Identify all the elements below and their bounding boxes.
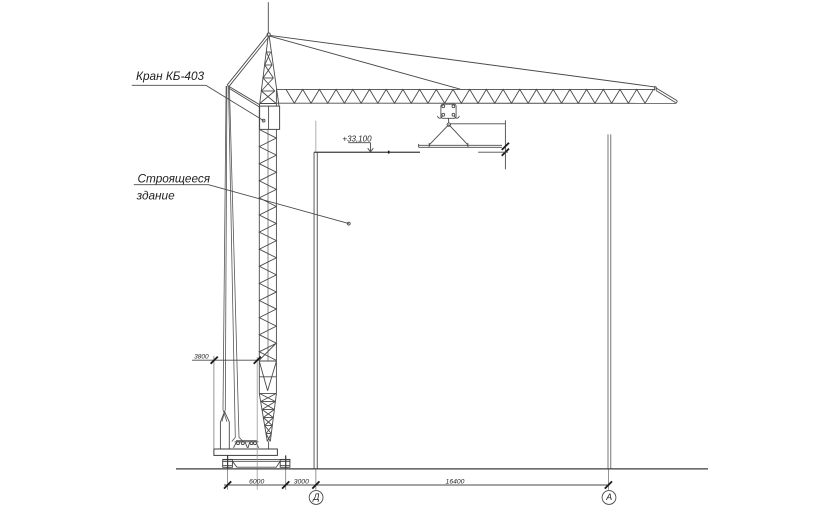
svg-text:6000: 6000 — [249, 479, 264, 486]
svg-text:Кран КБ-403: Кран КБ-403 — [136, 69, 205, 83]
svg-text:3800: 3800 — [194, 353, 209, 360]
svg-text:здание: здание — [136, 188, 175, 202]
svg-text:3000: 3000 — [294, 479, 309, 486]
svg-text:Строящееся: Строящееся — [138, 172, 211, 186]
svg-text:16400: 16400 — [446, 479, 465, 486]
svg-text:Д: Д — [312, 492, 319, 502]
svg-text:А: А — [605, 492, 612, 502]
